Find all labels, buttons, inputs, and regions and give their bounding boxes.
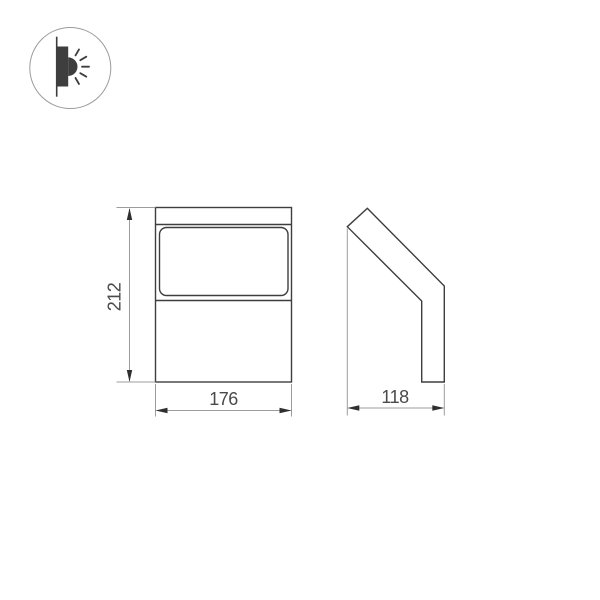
front-view-body <box>156 208 292 383</box>
side-view-profile <box>347 208 444 382</box>
height-dimension: 212 <box>104 208 155 383</box>
width-arrow-right-icon <box>280 408 292 413</box>
height-arrow-down-icon <box>127 370 132 382</box>
width-arrow-left-icon <box>156 408 168 413</box>
wall-light-direction-icon <box>30 28 111 109</box>
depth-arrow-right-icon <box>432 405 444 410</box>
front-view <box>156 208 292 383</box>
icon-lamp-body <box>57 47 68 87</box>
drawing-svg: 212 176 118 <box>0 0 600 600</box>
width-dimension-label: 176 <box>209 389 238 409</box>
side-view <box>347 208 444 382</box>
height-arrow-up-icon <box>127 208 132 220</box>
technical-drawing-canvas: 212 176 118 <box>0 0 600 600</box>
front-view-diffuser-panel <box>160 228 289 296</box>
height-dimension-label: 212 <box>104 282 124 311</box>
width-dimension: 176 <box>156 384 292 417</box>
depth-dimension-label: 118 <box>381 387 409 407</box>
depth-arrow-left-icon <box>347 405 359 410</box>
